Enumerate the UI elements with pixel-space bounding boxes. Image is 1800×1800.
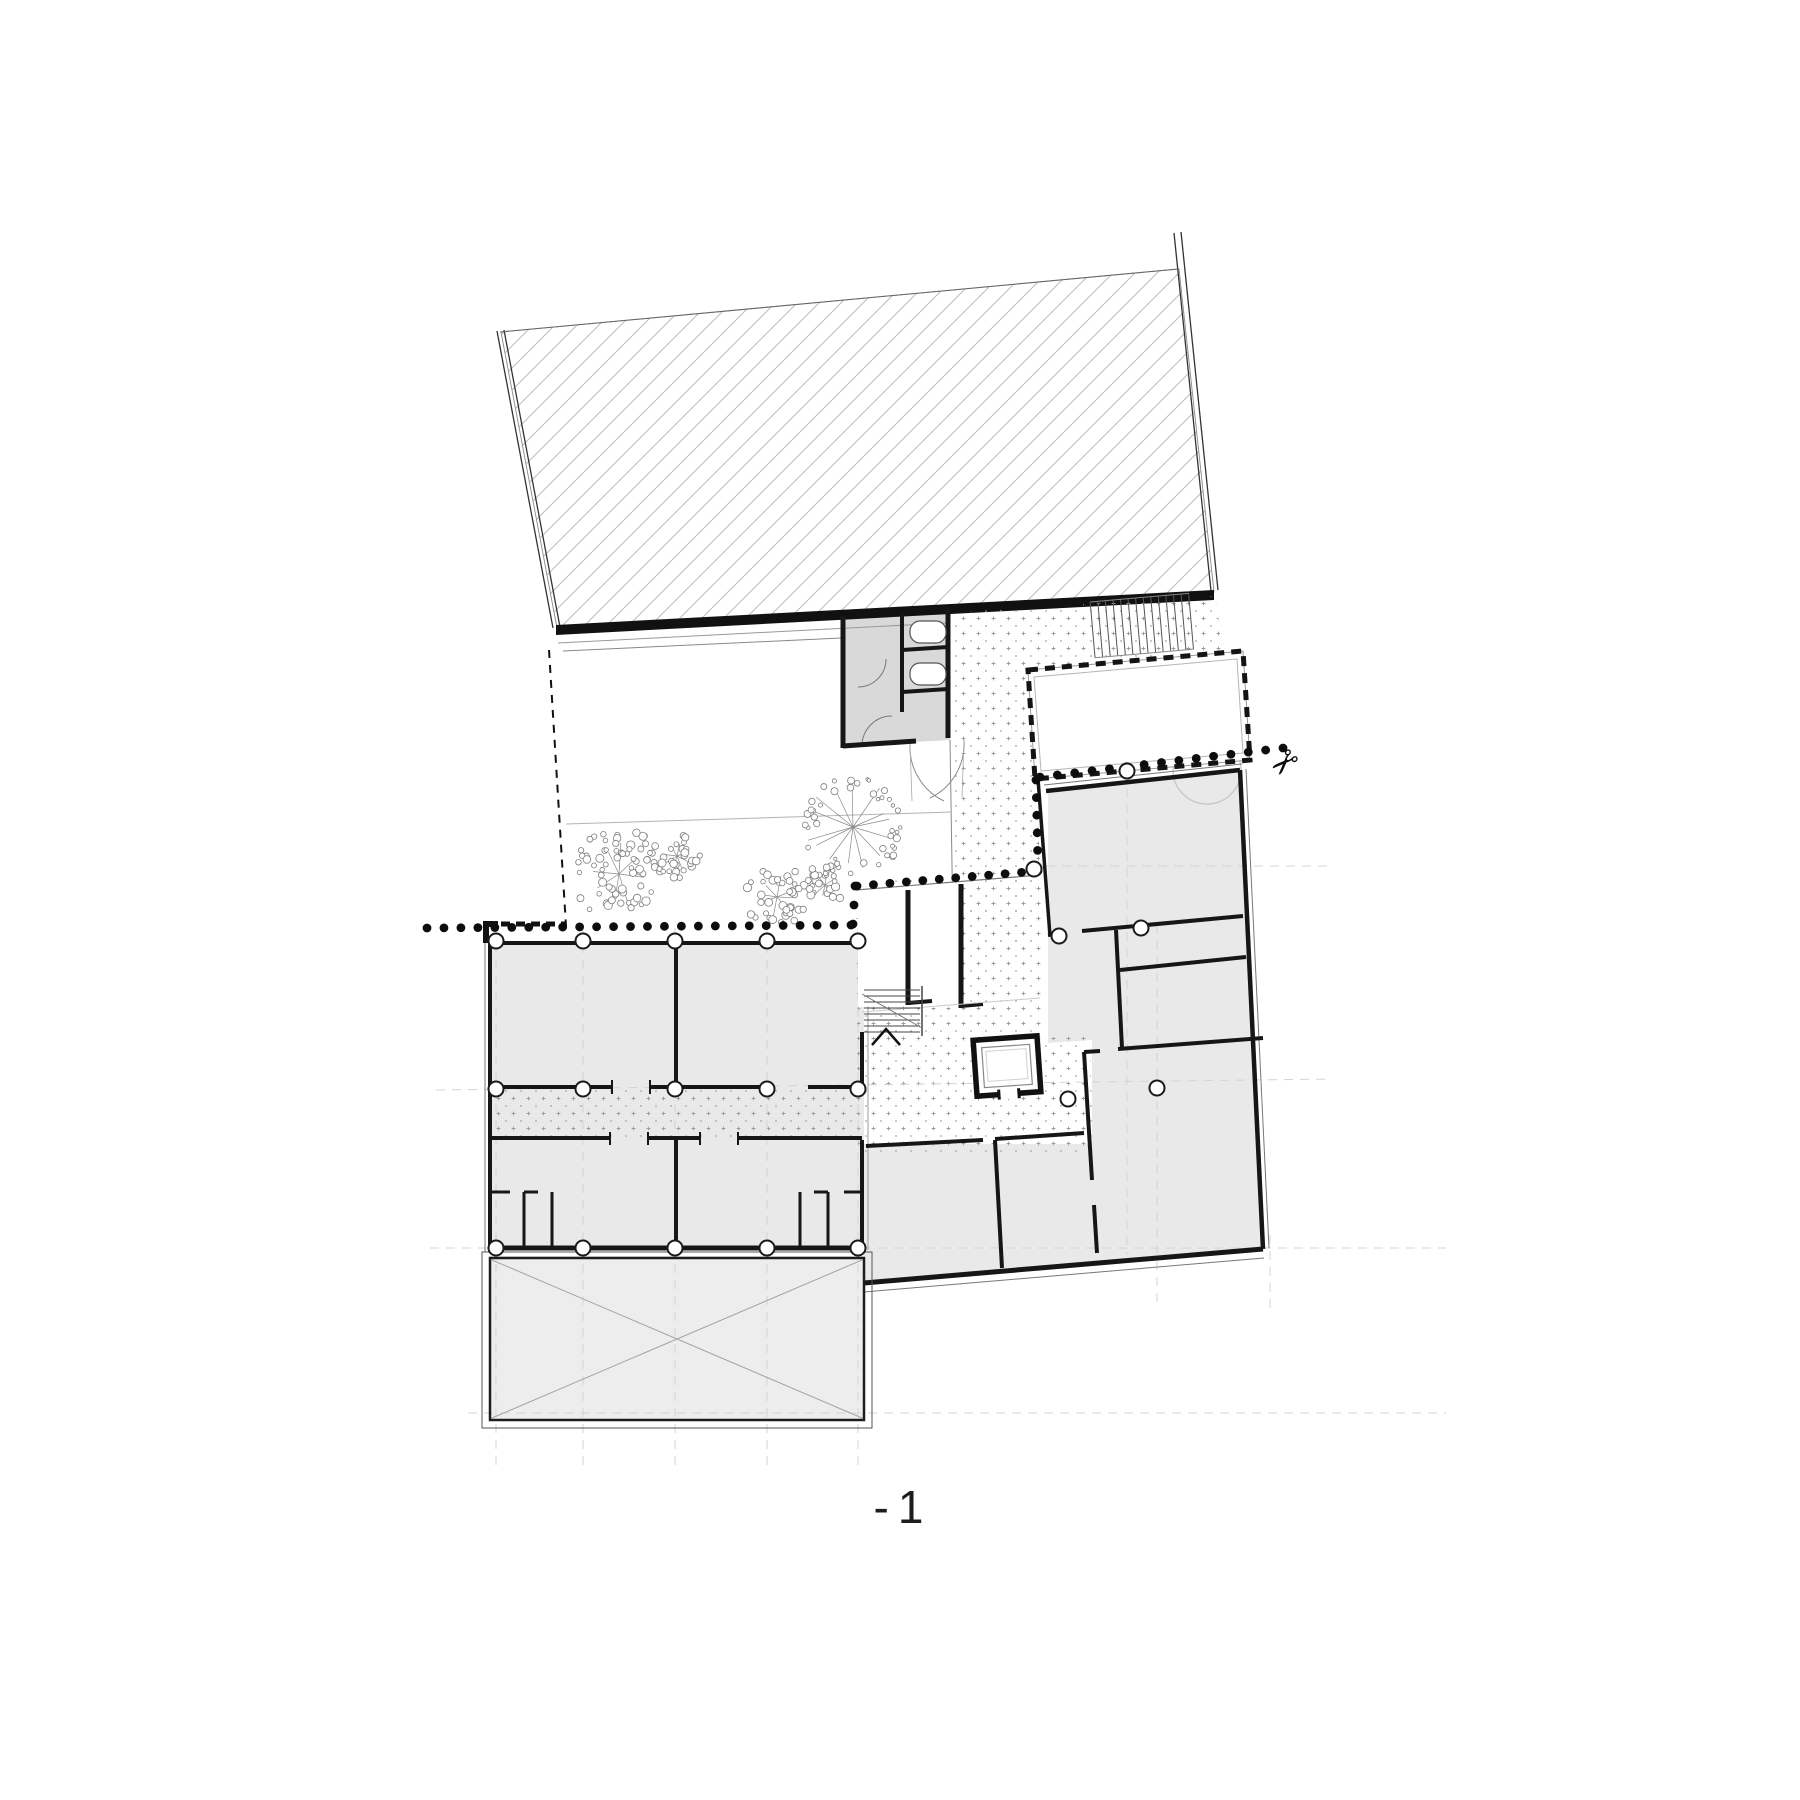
- floor-level-label: -1: [874, 1481, 933, 1533]
- elevator: [973, 1036, 1041, 1101]
- floor-plan-canvas: ✂ -1: [0, 0, 1800, 1800]
- neighbor-building-hatched: [497, 232, 1218, 643]
- section-cut-scissors-icon: ✂: [1259, 737, 1307, 785]
- floor-plan-page: ✂ -1: [0, 0, 1800, 1800]
